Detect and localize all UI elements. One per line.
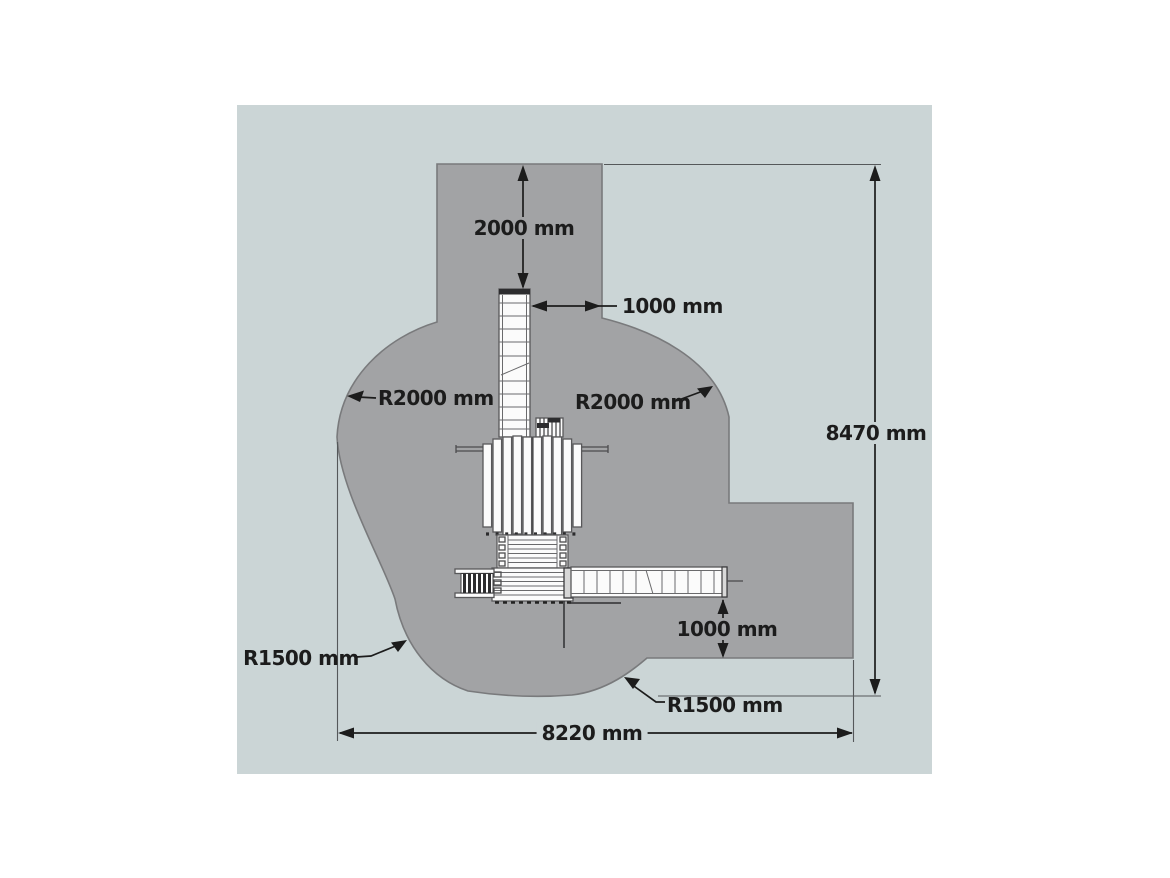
stairs [455, 569, 494, 598]
tower-roof-planks [483, 436, 582, 535]
upper-deck [497, 535, 568, 568]
diagram-stage: 2000 mm 1000 mm R2000 mm R2000 mm 8470 m… [0, 0, 1170, 878]
slide [499, 289, 530, 437]
bridge [571, 567, 743, 597]
lower-deck [492, 568, 573, 603]
plan-drawing [0, 0, 1170, 878]
climber-attachment [536, 418, 563, 437]
